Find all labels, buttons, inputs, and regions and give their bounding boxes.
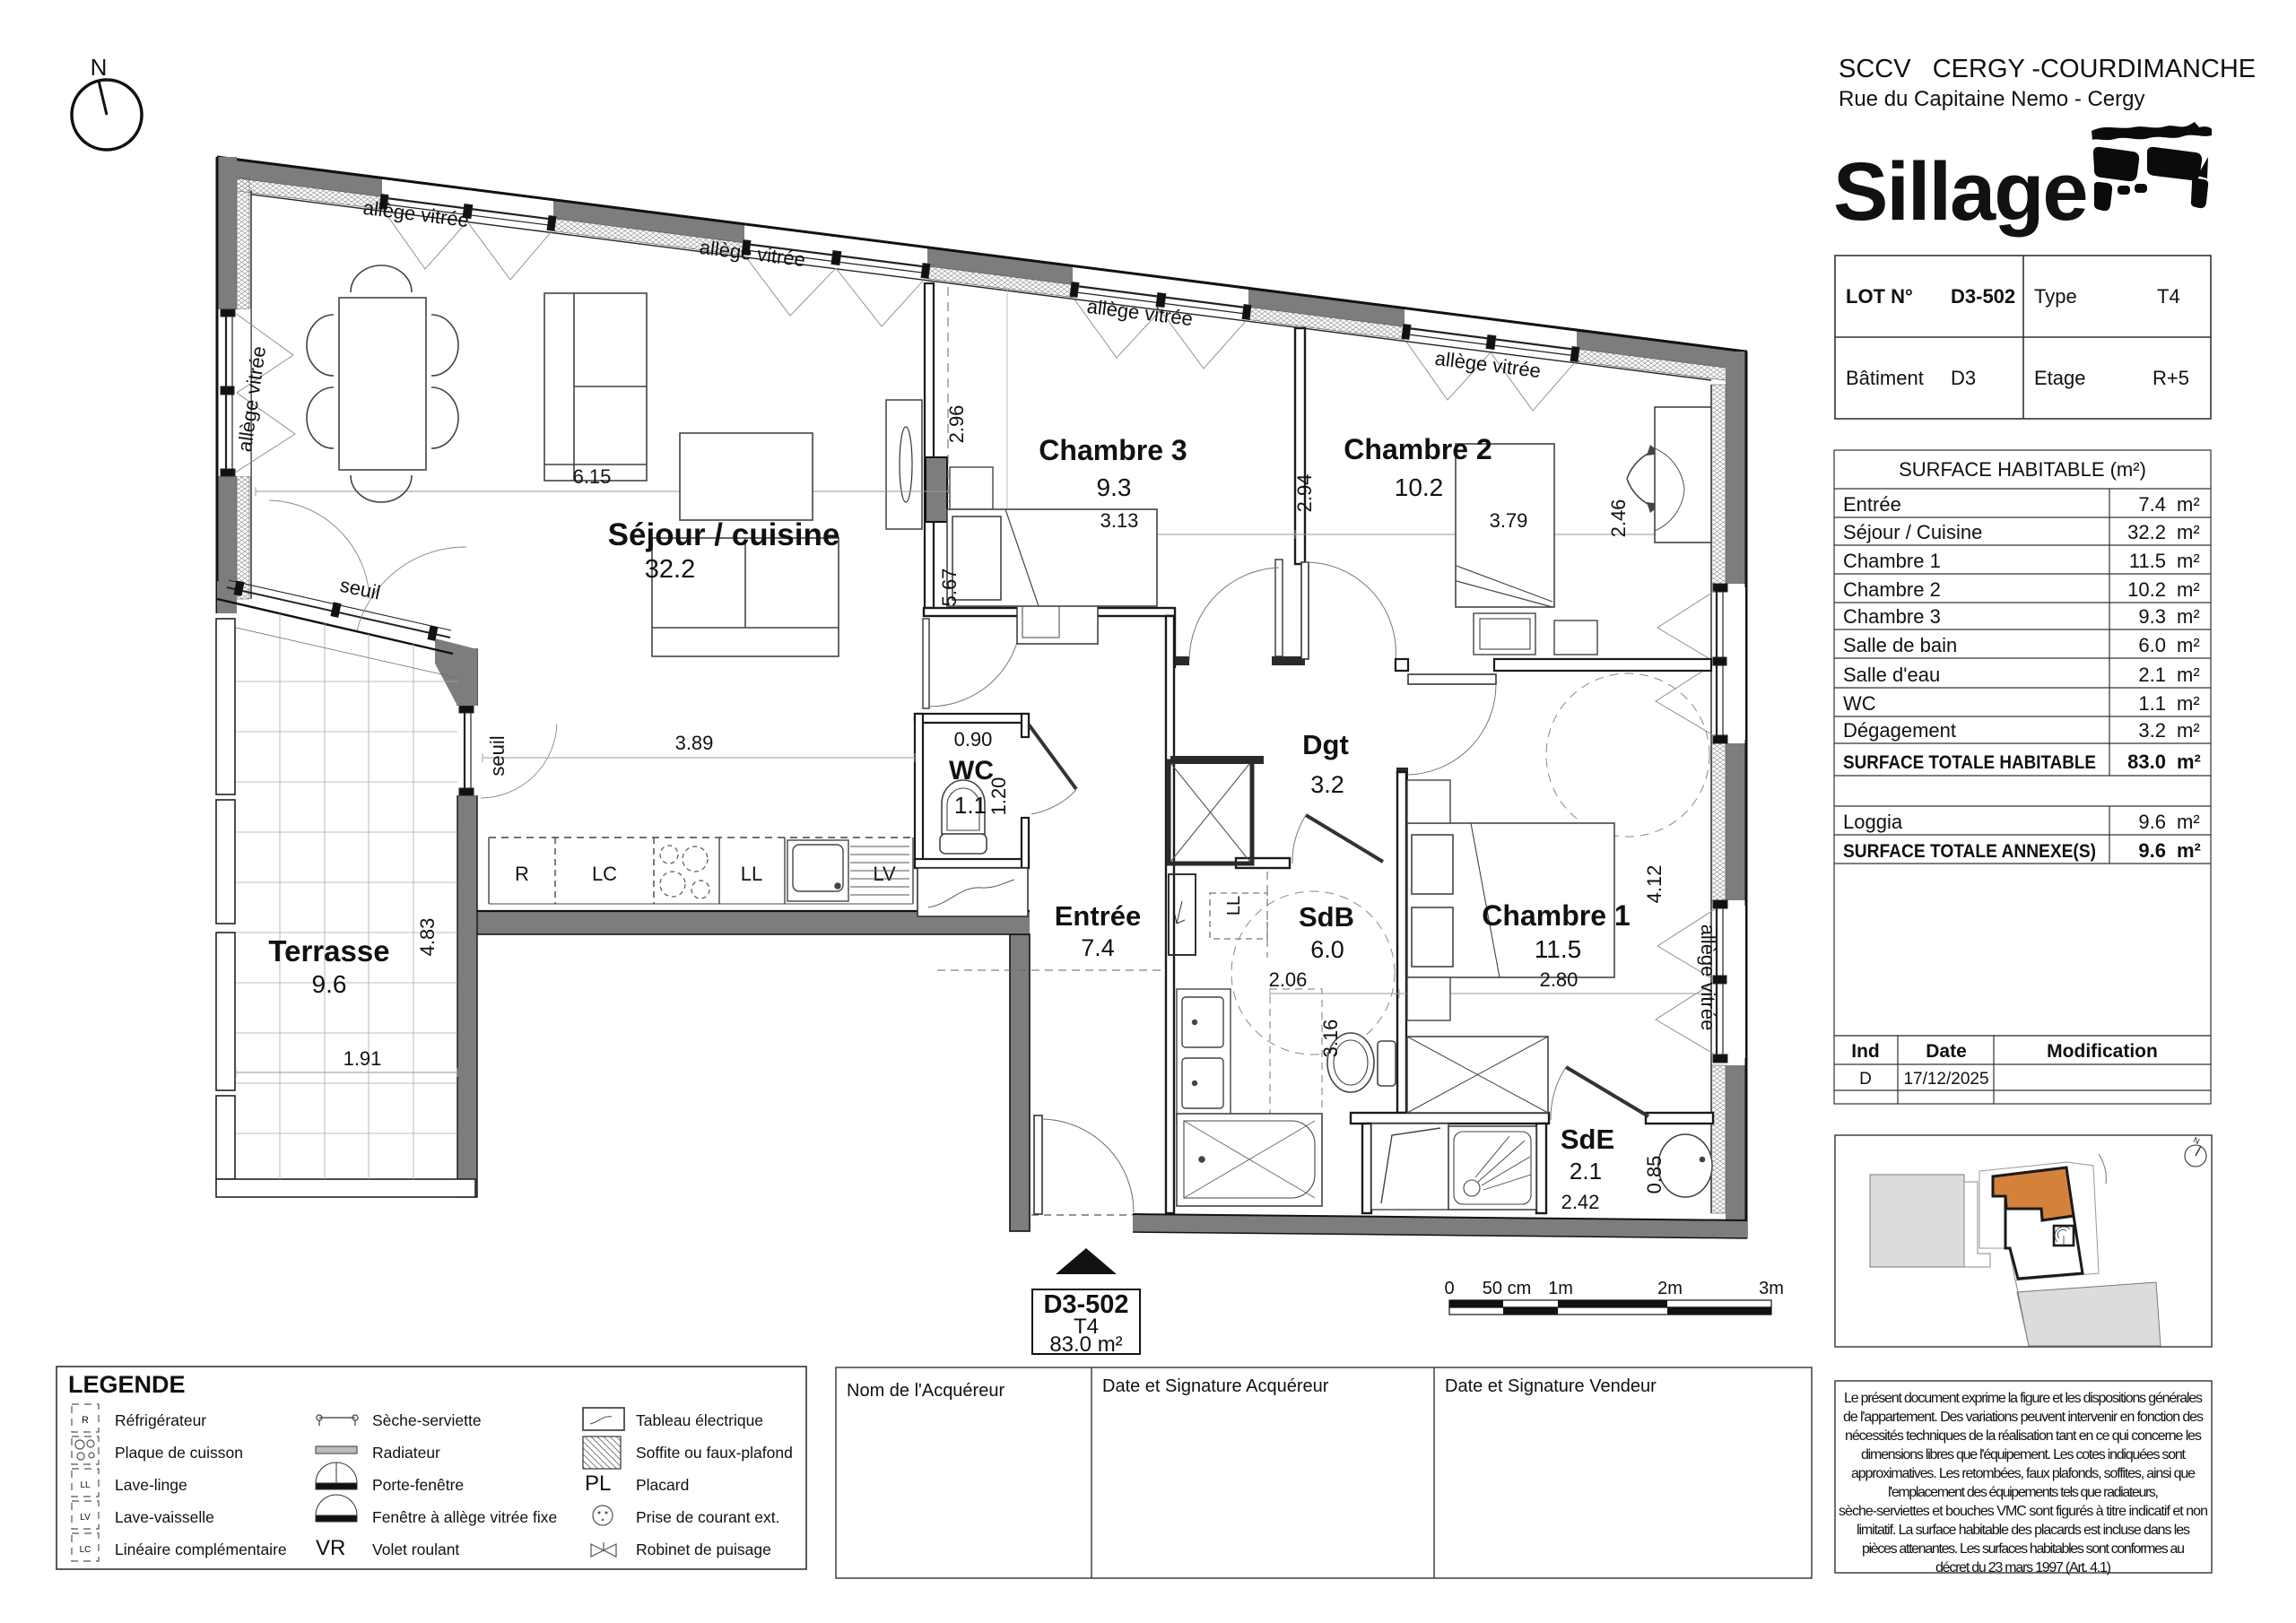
svg-text:1m: 1m (1548, 1279, 1573, 1298)
svg-text:Nom de l'Acquéreur: Nom de l'Acquéreur (847, 1381, 1004, 1401)
svg-text:de l'appartement. Des variatio: de l'appartement. Des variations peuvent… (1843, 1410, 2204, 1425)
svg-text:3.2: 3.2 (2138, 719, 2166, 742)
svg-text:décret du 23 mars 1997 (Art. 4: décret du 23 mars 1997 (Art. 4.1) (1935, 1560, 2111, 1575)
svg-text:SdB: SdB (1299, 901, 1354, 933)
svg-text:0.85: 0.85 (1643, 1156, 1665, 1194)
svg-text:Dgt: Dgt (1302, 729, 1349, 760)
svg-text:1.20: 1.20 (987, 777, 1010, 816)
svg-text:Ind: Ind (1851, 1041, 1880, 1062)
svg-text:Loggia: Loggia (1843, 811, 1903, 833)
svg-text:2.96: 2.96 (945, 405, 968, 444)
svg-text:m²: m² (2177, 521, 2200, 543)
svg-text:Salle d'eau: Salle d'eau (1843, 664, 1940, 686)
svg-text:dimensions libres que l'équipe: dimensions libres que l'équipement. Les … (1861, 1447, 2187, 1462)
svg-text:2.42: 2.42 (1561, 1191, 1600, 1213)
svg-text:SURFACE HABITABLE (m²): SURFACE HABITABLE (m²) (1899, 458, 2146, 481)
svg-text:D: D (1859, 1070, 1872, 1089)
svg-text:2m: 2m (1657, 1279, 1683, 1298)
svg-text:Lave-linge: Lave-linge (115, 1476, 187, 1494)
svg-text:Fenêtre à allège vitrée fixe: Fenêtre à allège vitrée fixe (372, 1508, 557, 1526)
svg-text:R: R (515, 863, 529, 885)
svg-text:WC: WC (1843, 692, 1876, 715)
svg-text:1.91: 1.91 (344, 1047, 382, 1070)
svg-text:Chambre 1: Chambre 1 (1843, 550, 1941, 572)
svg-text:Terrasse: Terrasse (268, 934, 389, 968)
svg-text:N: N (91, 54, 108, 81)
svg-text:Chambre 1: Chambre 1 (1482, 899, 1630, 932)
svg-text:4.12: 4.12 (1643, 865, 1665, 904)
svg-text:pièces attenantes. Les surface: pièces attenantes. Les surfaces habitabl… (1862, 1541, 2185, 1557)
svg-text:6.0: 6.0 (2138, 634, 2166, 656)
svg-text:50 cm: 50 cm (1483, 1279, 1531, 1298)
svg-text:Tableau électrique: Tableau électrique (636, 1411, 763, 1429)
svg-text:9.3: 9.3 (2138, 605, 2166, 628)
svg-text:Type: Type (2034, 285, 2077, 308)
svg-text:LV: LV (80, 1513, 91, 1523)
svg-text:m²: m² (2177, 719, 2200, 742)
svg-text:Porte-fenêtre: Porte-fenêtre (372, 1476, 464, 1494)
svg-text:D3-502: D3-502 (1951, 285, 2015, 308)
svg-text:LL: LL (80, 1480, 91, 1490)
svg-text:Dégagement: Dégagement (1843, 719, 1956, 742)
svg-text:2.80: 2.80 (1540, 968, 1578, 991)
svg-text:0.90: 0.90 (954, 728, 993, 751)
svg-text:Le présent document exprime la: Le présent document exprime la figure et… (1844, 1391, 2203, 1406)
svg-text:83.0: 83.0 (2127, 751, 2166, 773)
svg-text:3.89: 3.89 (675, 732, 714, 754)
svg-text:Chambre 2: Chambre 2 (1344, 433, 1492, 465)
svg-text:2.94: 2.94 (1293, 474, 1316, 513)
svg-text:VR: VR (316, 1536, 345, 1560)
svg-text:Séjour / cuisine: Séjour / cuisine (608, 517, 840, 552)
svg-text:5.67: 5.67 (938, 568, 961, 607)
svg-text:Placard: Placard (636, 1476, 689, 1494)
svg-text:Radiateur: Radiateur (372, 1444, 440, 1462)
svg-text:1.1: 1.1 (2138, 692, 2166, 715)
svg-text:6.0: 6.0 (1310, 936, 1344, 963)
svg-text:3.2: 3.2 (1310, 771, 1344, 798)
svg-text:m²: m² (2177, 692, 2200, 715)
svg-text:m²: m² (2177, 493, 2200, 516)
svg-text:LOT N°: LOT N° (1846, 285, 1913, 308)
svg-text:Chambre 2: Chambre 2 (1843, 578, 1941, 601)
svg-text:m²: m² (2177, 811, 2200, 833)
svg-text:10.2: 10.2 (1395, 473, 1444, 501)
svg-text:allège vitrée: allège vitrée (1697, 924, 1719, 1031)
svg-text:Rue du Capitaine Nemo - Cergy: Rue du Capitaine Nemo - Cergy (1839, 87, 2145, 111)
svg-text:9.3: 9.3 (1097, 473, 1132, 501)
svg-text:approximatives. Les retombées,: approximatives. Les retombées, faux plaf… (1851, 1466, 2196, 1481)
svg-text:Volet roulant: Volet roulant (372, 1541, 459, 1558)
svg-text:LL: LL (1224, 896, 1244, 916)
svg-text:D3: D3 (1951, 367, 1976, 389)
svg-text:m²: m² (2177, 605, 2200, 628)
svg-text:sèche-serviettes et bouches VM: sèche-serviettes et bouches VMC sont fig… (1839, 1504, 2208, 1519)
svg-text:l'emplacement des équipements: l'emplacement des équipements tels que r… (1888, 1485, 2159, 1500)
svg-text:Linéaire complémentaire: Linéaire complémentaire (115, 1541, 287, 1558)
svg-text:seuil: seuil (486, 735, 509, 776)
svg-text:m²: m² (2177, 839, 2201, 862)
svg-text:m²: m² (2177, 550, 2200, 572)
svg-text:10.2: 10.2 (2127, 578, 2166, 601)
svg-text:R: R (82, 1415, 89, 1426)
svg-text:PL: PL (585, 1471, 611, 1496)
svg-text:Entrée: Entrée (1843, 493, 1901, 516)
svg-text:Sèche-serviette: Sèche-serviette (372, 1411, 482, 1429)
svg-text:LV: LV (873, 863, 896, 885)
svg-text:Lave-vaisselle: Lave-vaisselle (115, 1508, 214, 1526)
svg-text:SURFACE TOTALE HABITABLE: SURFACE TOTALE HABITABLE (1843, 752, 2096, 773)
svg-text:m²: m² (2177, 751, 2201, 773)
svg-text:3.13: 3.13 (1100, 509, 1139, 532)
svg-text:Robinet de puisage: Robinet de puisage (636, 1541, 771, 1558)
svg-text:R+5: R+5 (2152, 367, 2189, 389)
svg-text:Bâtiment: Bâtiment (1846, 367, 1924, 389)
svg-text:7.4: 7.4 (1081, 934, 1115, 961)
svg-text:Prise de courant ext.: Prise de courant ext. (636, 1508, 780, 1526)
svg-text:T4: T4 (2157, 285, 2180, 308)
svg-text:4.83: 4.83 (416, 918, 439, 957)
svg-text:Séjour / Cuisine: Séjour / Cuisine (1843, 521, 1982, 543)
svg-text:2.06: 2.06 (1269, 968, 1308, 991)
svg-text:m²: m² (2177, 578, 2200, 601)
svg-text:17/12/2025: 17/12/2025 (1903, 1070, 1988, 1089)
svg-text:SCCV CERGY -COURDIMANCHE: SCCV CERGY -COURDIMANCHE (1839, 55, 2256, 83)
svg-text:32.2: 32.2 (645, 555, 695, 584)
svg-text:SdE: SdE (1561, 1124, 1614, 1155)
svg-text:6.15: 6.15 (573, 465, 612, 488)
svg-text:LC: LC (80, 1545, 91, 1555)
svg-text:0: 0 (1444, 1279, 1454, 1298)
svg-text:Sillage: Sillage (1833, 146, 2087, 238)
svg-text:Réfrigérateur: Réfrigérateur (115, 1411, 206, 1429)
svg-text:limitatif. La surface habitabl: limitatif. La surface habitable des plac… (1857, 1523, 2190, 1538)
svg-text:9.6: 9.6 (312, 970, 347, 998)
svg-text:83.0 m²: 83.0 m² (1049, 1332, 1122, 1357)
svg-text:3.79: 3.79 (1490, 509, 1528, 532)
svg-text:2.46: 2.46 (1607, 499, 1630, 538)
svg-text:Date: Date (1926, 1041, 1967, 1062)
svg-text:9.6: 9.6 (2138, 811, 2166, 833)
svg-text:Date et Signature Vendeur: Date et Signature Vendeur (1445, 1376, 1657, 1396)
svg-text:LEGENDE: LEGENDE (68, 1371, 186, 1398)
svg-text:Entrée: Entrée (1055, 900, 1141, 932)
svg-text:LL: LL (741, 863, 762, 885)
svg-text:Salle de bain: Salle de bain (1843, 634, 1957, 656)
svg-text:LC: LC (592, 863, 617, 885)
svg-text:Chambre 3: Chambre 3 (1039, 434, 1187, 466)
svg-text:m²: m² (2177, 634, 2200, 656)
svg-text:m²: m² (2177, 664, 2200, 686)
svg-text:Modification: Modification (2047, 1041, 2158, 1062)
svg-text:SURFACE TOTALE ANNEXE(S): SURFACE TOTALE ANNEXE(S) (1843, 841, 2096, 862)
svg-text:11.5: 11.5 (1535, 935, 1581, 963)
svg-text:7.4: 7.4 (2138, 493, 2166, 516)
svg-text:2.1: 2.1 (2138, 664, 2166, 686)
svg-text:9.6: 9.6 (2138, 839, 2166, 862)
svg-text:Plaque de cuisson: Plaque de cuisson (115, 1444, 243, 1462)
svg-text:3.16: 3.16 (1319, 1020, 1342, 1058)
svg-text:2.1: 2.1 (1570, 1158, 1602, 1185)
svg-text:Etage: Etage (2034, 367, 2086, 389)
svg-text:Soffite ou faux-plafond: Soffite ou faux-plafond (636, 1444, 793, 1462)
svg-text:Date et Signature Acquéreur: Date et Signature Acquéreur (1102, 1376, 1329, 1396)
svg-text:Chambre 3: Chambre 3 (1843, 605, 1941, 628)
svg-text:nécessités techniques de la ré: nécessités techniques de la réalisation … (1845, 1428, 2202, 1444)
svg-text:1.1: 1.1 (954, 792, 987, 819)
svg-text:3m: 3m (1759, 1279, 1784, 1298)
svg-text:32.2: 32.2 (2127, 521, 2166, 543)
svg-text:11.5: 11.5 (2129, 550, 2166, 572)
